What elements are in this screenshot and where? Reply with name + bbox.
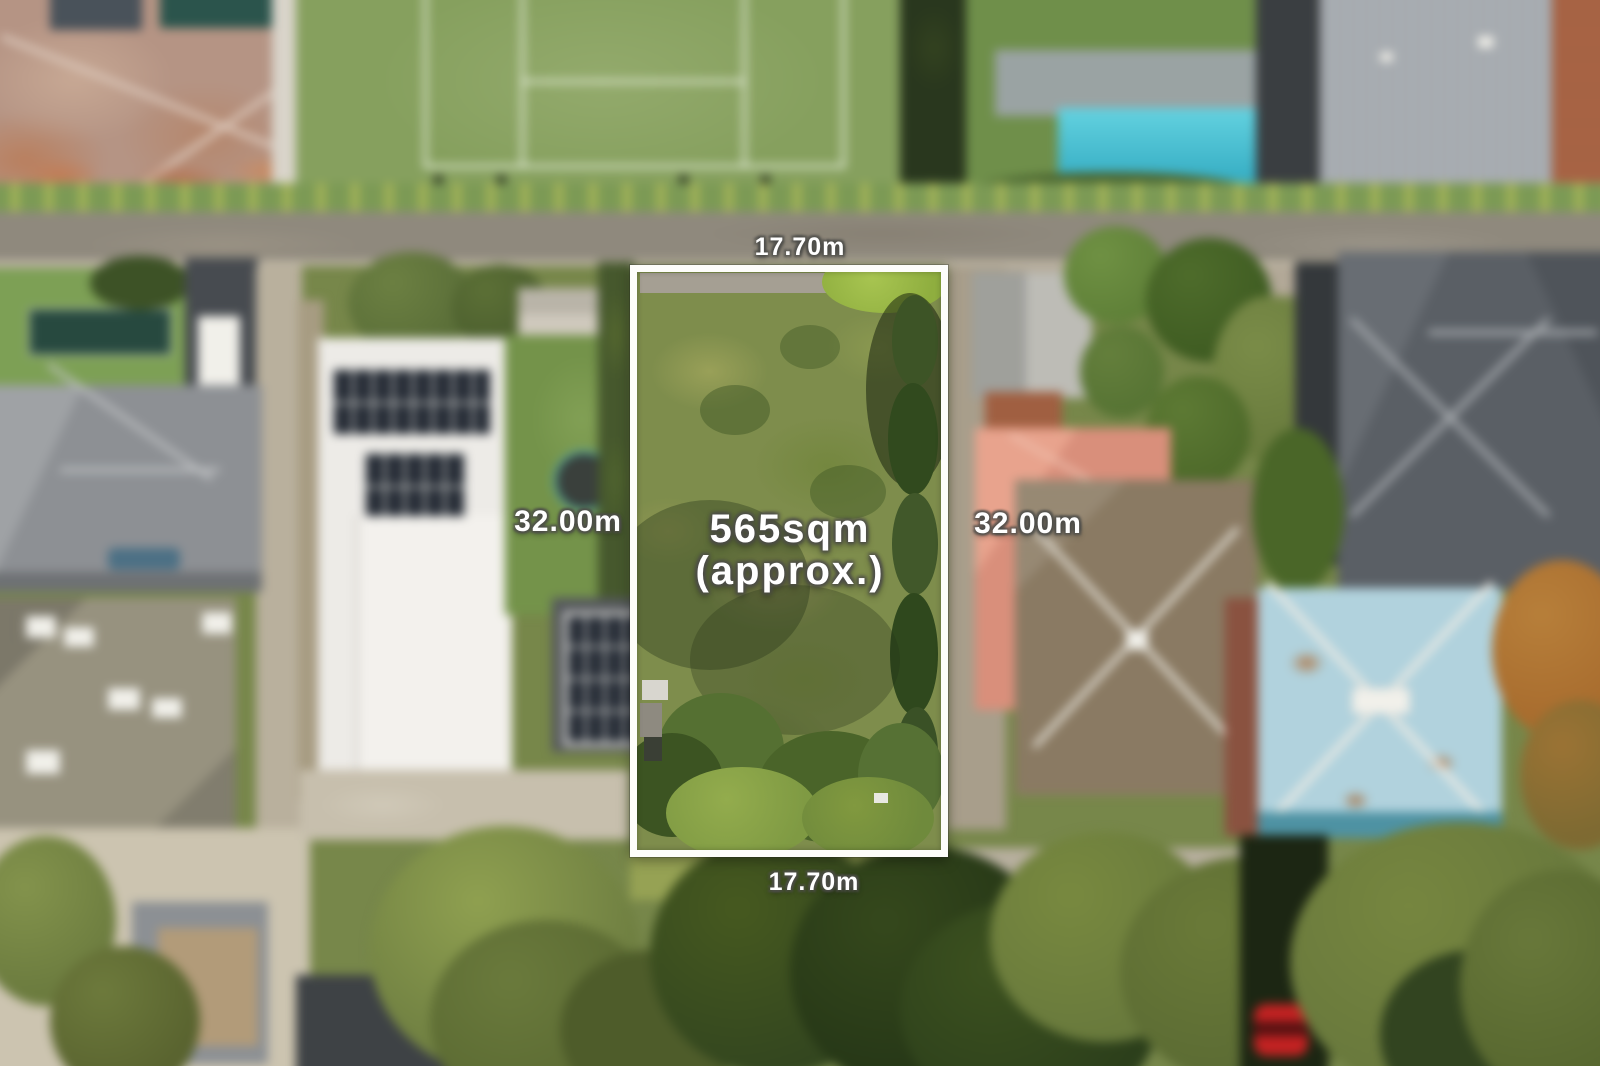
roof-ridge xyxy=(60,468,220,472)
roof-skylight xyxy=(202,612,232,634)
tennis-court xyxy=(296,0,908,208)
roof-skylight xyxy=(152,698,182,718)
dimension-label-top: 17.70m xyxy=(715,233,885,262)
house-shadow-wall xyxy=(1256,0,1320,202)
area-value: 565sqm xyxy=(640,508,940,550)
dimension-label-right: 32.00m xyxy=(943,507,1113,541)
white-house-upper xyxy=(356,515,512,782)
parked-car xyxy=(108,548,180,570)
rear-path xyxy=(300,770,630,840)
aerial-property-photo: 17.70m 17.70m 32.00m 32.00m 565sqm (appr… xyxy=(0,0,1600,1066)
boundary-hedge xyxy=(598,262,634,625)
court-line xyxy=(842,0,845,168)
pool-paving xyxy=(995,50,1256,116)
lap-pool xyxy=(28,308,172,356)
court-line xyxy=(521,0,524,168)
court-line xyxy=(743,0,746,168)
court-baseline xyxy=(424,165,845,168)
court-service-line xyxy=(521,80,746,83)
solar-panel-array xyxy=(330,366,492,436)
solar-panel xyxy=(50,0,142,30)
charcoal-hip-roof-house xyxy=(1338,252,1600,590)
solar-panel-array xyxy=(362,450,468,518)
area-label: 565sqm (approx.) xyxy=(640,508,940,592)
metal-roof-house xyxy=(1320,0,1555,200)
roof-vent xyxy=(1380,52,1393,62)
dimension-label-left: 32.00m xyxy=(483,505,653,539)
area-qualifier: (approx.) xyxy=(640,550,940,592)
court-line xyxy=(424,0,427,168)
hedge xyxy=(90,256,190,310)
roof-skylight xyxy=(64,627,94,647)
dimension-label-bottom: 17.70m xyxy=(729,868,899,897)
roof-skylight xyxy=(108,688,140,710)
parked-red-car xyxy=(1254,1004,1308,1056)
roof-hatch xyxy=(1352,688,1410,714)
tree xyxy=(1080,326,1164,418)
chimney xyxy=(1126,630,1148,650)
roof-skylight xyxy=(26,616,56,638)
hedge xyxy=(1252,428,1344,592)
roof-skylight xyxy=(26,750,60,774)
roof-vent xyxy=(1478,36,1494,48)
roof-skylight xyxy=(198,316,240,396)
eave-shadow xyxy=(0,572,262,592)
roof-ridge xyxy=(1428,330,1598,335)
